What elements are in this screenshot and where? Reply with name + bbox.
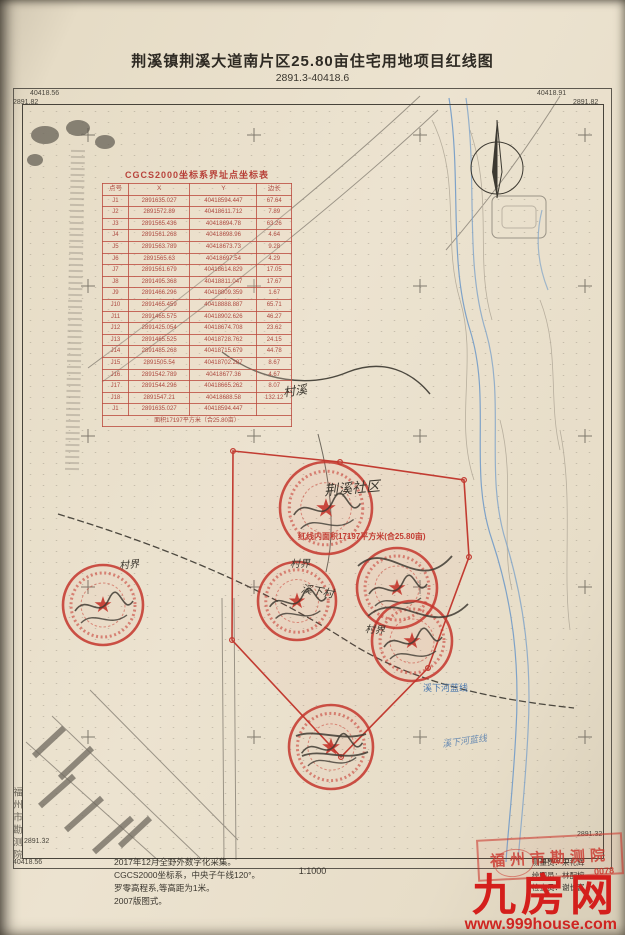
table-header-cell: X (128, 184, 190, 196)
table-cell: J3 (103, 218, 129, 230)
page-subtitle: 2891.3-40418.6 (0, 72, 625, 84)
table-cell: J14 (103, 346, 129, 358)
table-row: J92891466.29640418809.3591.67 (103, 288, 292, 300)
table-cell: 2891465.575 (128, 311, 190, 323)
boundary-point-table-title: CGCS2000坐标系界址点坐标表 (99, 168, 295, 181)
table-cell: 2891485.268 (128, 346, 190, 358)
table-cell: 2891466.296 (128, 288, 190, 300)
scanned-redline-map-page: ★ ★ ★ ★ ★ ★ (0, 0, 625, 935)
table-cell: 2891425.054 (128, 323, 190, 335)
table-cell: J2 (103, 207, 129, 219)
table-cell: J12 (103, 323, 129, 335)
table-cell: 2891565.63 (128, 253, 190, 265)
table-cell: 8.67 (257, 357, 292, 369)
table-cell: 2891544.296 (128, 381, 190, 393)
table-cell: 40418728.762 (190, 334, 257, 346)
corner-coord-top-right-easting: 40418.91 (537, 90, 566, 97)
table-cell: 2891495.368 (128, 276, 190, 288)
table-cell: J5 (103, 241, 129, 253)
table-header-row: 点号XY边长 (103, 184, 292, 196)
table-row: J102891465.45940418888.88765.71 (103, 299, 292, 311)
table-row: J152891505.5440418702.2878.67 (103, 357, 292, 369)
table-cell: 44.78 (257, 346, 292, 358)
table-cell: 2891542.789 (128, 369, 190, 381)
table-cell (257, 404, 292, 416)
table-cell: J1 (103, 195, 129, 207)
table-row: J52891563.78940418673.739.28 (103, 241, 292, 253)
table-cell: 40418673.73 (190, 241, 257, 253)
table-row: J72891561.67940418614.82917.05 (103, 265, 292, 277)
table-row: J162891542.78940418677.364.67 (103, 369, 292, 381)
table-cell: 40418674.708 (190, 323, 257, 335)
institute-side-text: 福州市勘测院 (9, 787, 23, 862)
table-cell: 4.67 (257, 369, 292, 381)
table-cell: 9.28 (257, 241, 292, 253)
table-cell: 40418594.447 (190, 404, 257, 416)
table-header-cell: 点号 (103, 184, 129, 196)
table-cell: J8 (103, 276, 129, 288)
table-cell: J10 (103, 299, 129, 311)
table-row: J132891465.52540418728.76224.15 (103, 334, 292, 346)
table-cell: 63.26 (257, 218, 292, 230)
table-cell: 17.67 (257, 276, 292, 288)
table-cell: J4 (103, 230, 129, 242)
table-cell: 40418688.58 (190, 392, 257, 404)
table-cell: 40418811.047 (190, 276, 257, 288)
table-cell: 2891563.789 (128, 241, 190, 253)
table-cell: 40418698.96 (190, 230, 257, 242)
table-cell: 40418694.78 (190, 218, 257, 230)
survey-note-line: 2007版图式。 (114, 895, 260, 908)
table-row: J182891547.2140418688.58132.12 (103, 392, 292, 404)
table-cell: J11 (103, 311, 129, 323)
table-cell: 2891505.54 (128, 357, 190, 369)
table-cell: 2891465.525 (128, 334, 190, 346)
table-cell: 2891572.89 (128, 207, 190, 219)
table-row: J82891495.36840418811.04717.67 (103, 276, 292, 288)
label-creek: 村溪 (282, 380, 308, 400)
page-title: 荆溪镇荆溪大道南片区25.80亩住宅用地项目红线图 (0, 50, 625, 71)
table-cell: 40418702.287 (190, 357, 257, 369)
table-cell: 40418594.447 (190, 195, 257, 207)
table-cell: J15 (103, 357, 129, 369)
label-village-boundary-1: 村界 (118, 555, 139, 572)
table-cell: 65.71 (257, 299, 292, 311)
table-cell: 2891561.268 (128, 230, 190, 242)
table-row: J112891465.57540418902.62646.27 (103, 311, 292, 323)
table-row: J22891572.8940418611.7127.89 (103, 207, 292, 219)
table-cell: 23.62 (257, 323, 292, 335)
table-cell: J6 (103, 253, 129, 265)
table-row: J12891635.02740418594.44767.64 (103, 195, 292, 207)
table-row: J172891544.29640418665.2628.07 (103, 381, 292, 393)
table-header-cell: 边长 (257, 184, 292, 196)
table-cell: J9 (103, 288, 129, 300)
watermark-logo: 九房网 (472, 874, 619, 918)
table-cell: 4.64 (257, 230, 292, 242)
table-cell: 46.27 (257, 311, 292, 323)
boundary-point-table: CGCS2000坐标系界址点坐标表 点号XY边长 J12891635.02740… (99, 168, 295, 427)
table-cell: 24.15 (257, 334, 292, 346)
table-row: J142891485.26840418715.67944.78 (103, 346, 292, 358)
label-village-boundary-2: 村界 (290, 555, 310, 570)
redline-area-note: 红线内面积17197平方米(合25.80亩) (298, 531, 426, 542)
table-header-cell: Y (190, 184, 257, 196)
table-cell: 2891465.459 (128, 299, 190, 311)
table-cell: 2891565.436 (128, 218, 190, 230)
table-row: J42891561.26840418698.964.64 (103, 230, 292, 242)
label-village-boundary-3: 村界 (365, 620, 386, 636)
corner-coord-top-right-northing: 2891.82 (573, 99, 598, 106)
table-row: J62891565.6340418697.544.29 (103, 253, 292, 265)
table-cell: 40418888.887 (190, 299, 257, 311)
table-cell: 2891635.027 (128, 404, 190, 416)
table-cell: 40418665.262 (190, 381, 257, 393)
table-cell: 4.29 (257, 253, 292, 265)
table-cell: J17 (103, 381, 129, 393)
table-cell: J7 (103, 265, 129, 277)
table-cell: J16 (103, 369, 129, 381)
table-footer-area: 面积17197平方米（合25.80亩） (103, 415, 292, 427)
table-row: J122891425.05440418674.70823.62 (103, 323, 292, 335)
table-row: J12891635.02740418594.447 (103, 404, 292, 416)
corner-coord-bottom-left-northing: 2891.32 (24, 838, 49, 845)
survey-notes: 2017年12月全野外数字化采集。CGCS2000坐标系，中央子午线120°。罗… (114, 856, 260, 908)
table-cell: 17.05 (257, 265, 292, 277)
table-cell: 2891635.027 (128, 195, 190, 207)
table-cell: 40418611.712 (190, 207, 257, 219)
table-row: J32891565.43640418694.7863.26 (103, 218, 292, 230)
table-cell: 40418809.359 (190, 288, 257, 300)
table-cell: 40418902.626 (190, 311, 257, 323)
table-cell: 1.67 (257, 288, 292, 300)
label-river-blueline-1: 溪下河蓝线 (423, 681, 468, 694)
table-cell: J18 (103, 392, 129, 404)
table-cell: 40418677.36 (190, 369, 257, 381)
table-cell: 2891547.21 (128, 392, 190, 404)
table-cell: 40418614.829 (190, 265, 257, 277)
corner-coord-top-left-northing: 2891.82 (13, 99, 38, 106)
table-cell: 67.64 (257, 195, 292, 207)
table-cell: 7.89 (257, 207, 292, 219)
table-cell: 40418697.54 (190, 253, 257, 265)
table-cell: J13 (103, 334, 129, 346)
survey-note-line: 罗零高程系,等高距为1米。 (114, 882, 260, 895)
table-cell: 2891561.679 (128, 265, 190, 277)
table-cell: J1 (103, 404, 129, 416)
table-cell: 40418715.679 (190, 346, 257, 358)
watermark-url: www.999house.com (465, 916, 617, 934)
corner-coord-top-left-easting: 40418.56 (30, 90, 59, 97)
